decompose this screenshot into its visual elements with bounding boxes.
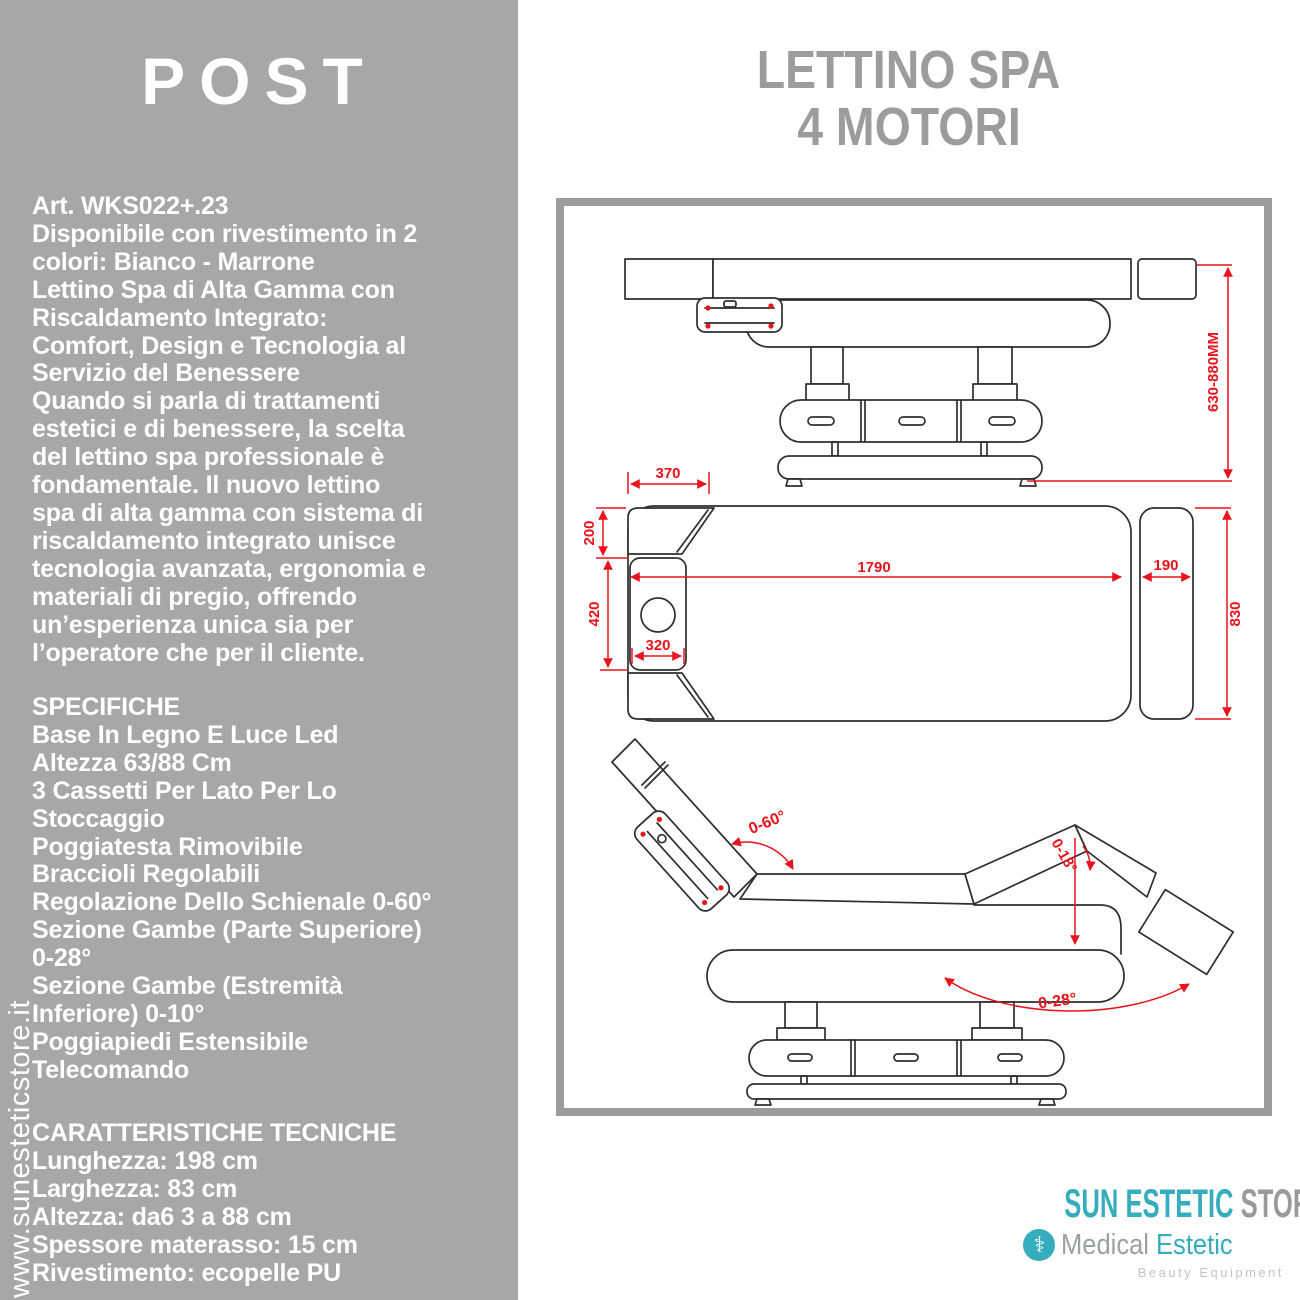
website-watermark: www.sunesteticstore.it (4, 1000, 37, 1298)
text-line: Lunghezza: 198 cm (32, 1148, 396, 1176)
technical-drawing: 630-880MM 370 200 420 320 1790 190 830 0… (564, 206, 1264, 1108)
text-line: l’operatore che per il cliente. (32, 640, 426, 668)
sidebar: POST Art. WKS022+.23Disponibile con rive… (0, 0, 518, 1300)
text-line: Disponibile con rivestimento in 2 (32, 221, 426, 249)
text-line: Lettino Spa di Alta Gamma con (32, 277, 426, 305)
text-line: un’esperienza unica sia per (32, 612, 426, 640)
brand-tagline: Beauty Equipment (990, 1265, 1290, 1280)
text-line: Larghezza: 83 cm (32, 1176, 396, 1204)
caduceus-icon: ⚕ (1023, 1229, 1055, 1261)
text-line: del lettino spa professionale è (32, 444, 426, 472)
brand-text: Medical Estetic (1061, 1228, 1233, 1262)
text-line: colori: Bianco - Marrone (32, 249, 426, 277)
text-line: Regolazione Dello Schienale 0-60° (32, 889, 431, 917)
store-name-gray: STORE (1234, 1182, 1300, 1226)
text-line: Riscaldamento Integrato: (32, 305, 426, 333)
side-view-drawing (625, 259, 1196, 486)
store-logo: SUN ESTETIC STORE ⚕ Medical Estetic Beau… (990, 1182, 1290, 1280)
text-line: Poggiatesta Rimovibile (32, 834, 431, 862)
dim-190: 190 (1153, 557, 1178, 574)
text-line: 0-28° (32, 945, 431, 973)
angle-backrest: 0-60° (746, 808, 788, 838)
technical-characteristics-list: CARATTERISTICHE TECNICHELunghezza: 198 c… (32, 1120, 396, 1287)
text-line: Altezza: da6 3 a 88 cm (32, 1204, 396, 1232)
brand-medical: Medical (1061, 1229, 1156, 1261)
text-line: fondamentale. Il nuovo lettino (32, 472, 426, 500)
specifications-list: SPECIFICHEBase In Legno E Luce LedAltezz… (32, 694, 431, 1085)
text-line: Rivestimento: ecopelle PU (32, 1260, 396, 1288)
text-line: tecnologia avanzata, ergonomia e (32, 556, 426, 584)
dim-1790: 1790 (857, 559, 890, 576)
dim-370: 370 (655, 465, 680, 482)
text-line: Telecomando (32, 1057, 431, 1085)
text-line: Altezza 63/88 Cm (32, 750, 431, 778)
text-line: Base In Legno E Luce Led (32, 722, 431, 750)
post-logo: POST (0, 36, 518, 126)
dim-height-range: 630-880MM (1205, 332, 1222, 412)
text-line: Sezione Gambe (Estremità (32, 973, 431, 1001)
store-name-teal: SUN ESTETIC (1064, 1182, 1233, 1226)
product-description: Art. WKS022+.23Disponibile con rivestime… (32, 193, 426, 667)
title-line-1: LETTINO SPA (757, 42, 1061, 99)
text-line: Quando si parla di trattamenti (32, 388, 426, 416)
text-line: 3 Cassetti Per Lato Per Lo (32, 778, 431, 806)
product-sheet: POST Art. WKS022+.23Disponibile con rive… (0, 0, 1300, 1300)
text-line: estetici e di benessere, la scelta (32, 416, 426, 444)
page-title: LETTINO SPA 4 MOTORI (518, 42, 1300, 156)
text-line: SPECIFICHE (32, 694, 431, 722)
text-line: Sezione Gambe (Parte Superiore) (32, 917, 431, 945)
text-line: Inferiore) 0-10° (32, 1001, 431, 1029)
brand-estetic: Estetic (1157, 1229, 1234, 1261)
store-logo-text: SUN ESTETIC STORE (1064, 1182, 1300, 1226)
dim-830: 830 (1227, 601, 1244, 626)
text-line: Art. WKS022+.23 (32, 193, 426, 221)
top-view-drawing (628, 506, 1193, 721)
text-line: materiali di pregio, offrendo (32, 584, 426, 612)
text-line: Servizio del Benessere (32, 360, 426, 388)
text-line: Braccioli Regolabili (32, 861, 431, 889)
text-line: CARATTERISTICHE TECNICHE (32, 1120, 396, 1148)
text-line: Spessore materasso: 15 cm (32, 1232, 396, 1260)
text-line: Stoccaggio (32, 806, 431, 834)
dim-320: 320 (645, 637, 670, 654)
title-line-2: 4 MOTORI (797, 99, 1021, 156)
angle-view-drawing (612, 739, 1233, 1105)
dim-200: 200 (581, 520, 598, 545)
dim-420: 420 (586, 601, 603, 626)
diagram-panel: 630-880MM 370 200 420 320 1790 190 830 0… (556, 198, 1272, 1116)
text-line: Poggiapiedi Estensibile (32, 1029, 431, 1057)
text-line: spa di alta gamma con sistema di (32, 500, 426, 528)
text-line: riscaldamento integrato unisce (32, 528, 426, 556)
text-line: Comfort, Design e Tecnologia al (32, 333, 426, 361)
